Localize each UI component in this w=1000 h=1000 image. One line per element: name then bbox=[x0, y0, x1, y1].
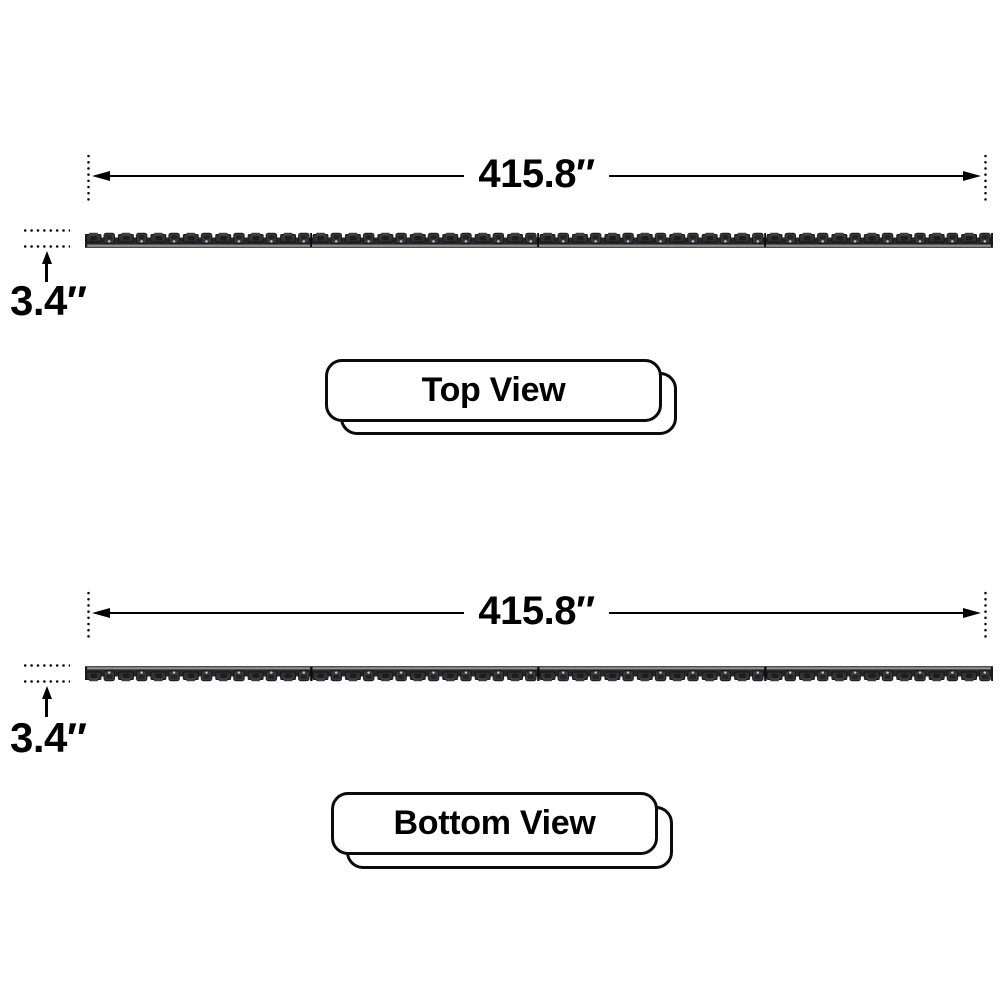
dimension-line-segment bbox=[609, 175, 963, 178]
top-length-dimension-label: 415.8″ bbox=[478, 154, 594, 194]
bottom-height-dimension-label: 3.4″ bbox=[10, 717, 87, 759]
dimension-line-segment bbox=[110, 175, 464, 178]
arrow-up-icon bbox=[42, 686, 52, 699]
bottom-length-dimension: 415.8″ bbox=[92, 597, 981, 629]
arrow-left-icon bbox=[92, 171, 110, 181]
top-view-card-label: Top View bbox=[422, 373, 566, 407]
bottom-view-product-bar bbox=[85, 666, 993, 683]
bottom-length-dimension-label: 415.8″ bbox=[478, 591, 594, 631]
diagram-canvas: 415.8″ bbox=[0, 0, 1000, 1000]
top-height-reference-line-lower bbox=[22, 245, 70, 248]
top-extension-line-right bbox=[984, 153, 987, 204]
arrow-up-icon bbox=[42, 251, 52, 264]
bottom-height-reference-line-lower bbox=[22, 680, 70, 683]
top-view-card: Top View bbox=[325, 359, 662, 422]
top-extension-line-left bbox=[87, 153, 90, 204]
top-height-dimension-label: 3.4″ bbox=[10, 280, 87, 322]
bottom-view-card-label: Bottom View bbox=[394, 806, 596, 840]
dimension-line-segment bbox=[110, 612, 464, 615]
bottom-height-dimension-arrow bbox=[40, 686, 53, 717]
bottom-extension-line-right bbox=[984, 590, 987, 641]
bottom-height-reference-line-upper bbox=[22, 664, 70, 667]
top-height-reference-line-upper bbox=[22, 229, 70, 232]
arrow-right-icon bbox=[963, 171, 981, 181]
top-view-product-bar bbox=[85, 231, 993, 248]
top-length-dimension: 415.8″ bbox=[92, 160, 981, 192]
arrow-right-icon bbox=[963, 608, 981, 618]
dimension-line-segment bbox=[609, 612, 963, 615]
arrow-left-icon bbox=[92, 608, 110, 618]
bottom-view-card: Bottom View bbox=[331, 792, 658, 855]
bottom-extension-line-left bbox=[87, 590, 90, 641]
